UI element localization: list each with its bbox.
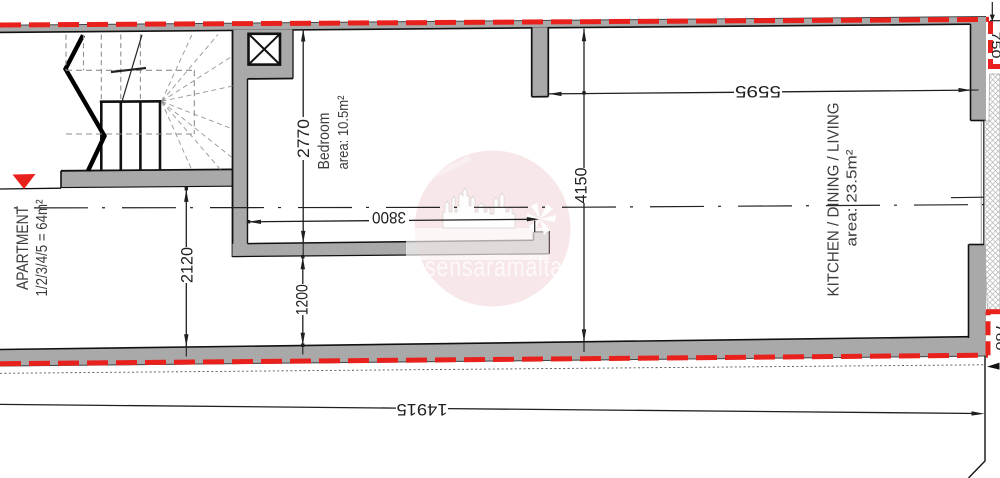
svg-text:5595: 5595 — [735, 82, 781, 101]
svg-text:760: 760 — [993, 324, 1000, 351]
svg-text:sensaramalta: sensaramalta — [425, 251, 563, 282]
svg-text:750: 750 — [989, 32, 1000, 59]
svg-text:KITCHEN / DINING / LIVING: KITCHEN / DINING / LIVING — [826, 103, 843, 297]
svg-text:3800: 3800 — [372, 208, 406, 227]
svg-text:area: 10.5m²: area: 10.5m² — [335, 96, 352, 170]
svg-text:Bedroom: Bedroom — [316, 113, 333, 170]
svg-text:4150: 4150 — [572, 168, 591, 204]
svg-text:area: 23.5m²: area: 23.5m² — [844, 150, 861, 247]
svg-text:APARTMENT: APARTMENT — [14, 206, 32, 290]
svg-text:2770: 2770 — [294, 119, 313, 158]
svg-text:2120: 2120 — [177, 247, 196, 283]
svg-text:1200: 1200 — [293, 284, 312, 315]
svg-text:14915: 14915 — [397, 400, 448, 419]
svg-text:1/2/3/4/5 = 64m²: 1/2/3/4/5 = 64m² — [34, 199, 51, 297]
